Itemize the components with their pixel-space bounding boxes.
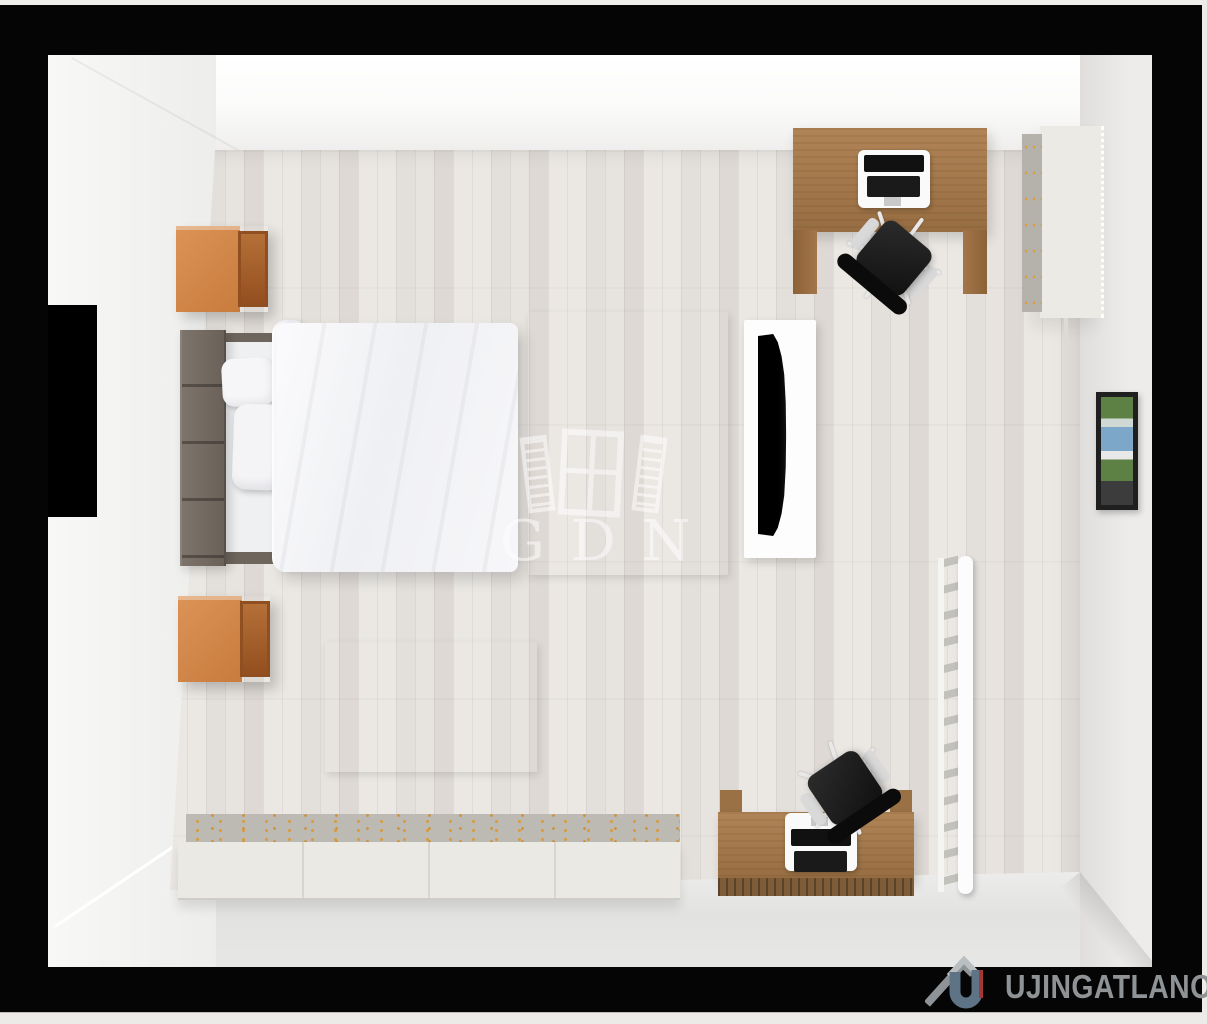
office-chair-top [842,210,946,306]
computer-keyboard [794,851,847,872]
pillow [221,357,275,408]
wardrobe-side-panel [1022,134,1042,312]
left-wall-opening [48,305,97,517]
wardrobe [1040,126,1104,318]
wall-picture [1096,392,1138,510]
wardrobe-dotted-edge [1098,126,1104,318]
nightstand-top-face [178,596,242,682]
duvet [276,323,518,572]
rug-small [325,642,537,772]
floorplan-render: GDN UJINGATLANOK.HU [0,0,1207,1024]
brand-text: UJINGATLANOK.HU [1005,968,1207,1006]
sideboard-front [178,842,680,900]
house-u-logo-icon [925,952,1003,1014]
computer-base [884,197,901,206]
frame-edge-top [0,0,1207,5]
ladder-rail [938,558,944,892]
frame-edge-right [1202,0,1207,1024]
bed-headboard [180,330,226,566]
nightstand-edge-highlight [176,226,240,230]
double-bed [176,320,522,572]
nightstand-door [240,601,270,677]
frame-border-left [0,5,48,1012]
tv [758,334,796,536]
storage-sideboard [178,814,682,900]
nightstand-top-face [176,226,240,312]
computer-screen [864,155,924,172]
office-chair-bottom [793,740,897,836]
ladder-rail [958,556,973,894]
brand-logo: UJINGATLANOK.HU [925,952,1200,1014]
desk-bottom-edge [718,878,914,896]
rug-large [528,312,728,575]
nightstand-top [176,226,268,312]
ladder-rack [936,554,980,896]
nightstand-door [238,231,268,307]
desk-side-panel [963,230,987,294]
frame-border-right [1152,5,1207,1012]
tv-stand [744,320,816,558]
computer-keyboard [867,176,920,197]
frame-border-top [0,5,1207,55]
sideboard-top [186,814,680,844]
desktop-computer-top [858,150,930,208]
nightstand-edge-highlight [178,596,242,600]
desk-side-panel [793,230,817,294]
nightstand-bottom [178,596,270,682]
wardrobe-base-line [1064,318,1068,348]
